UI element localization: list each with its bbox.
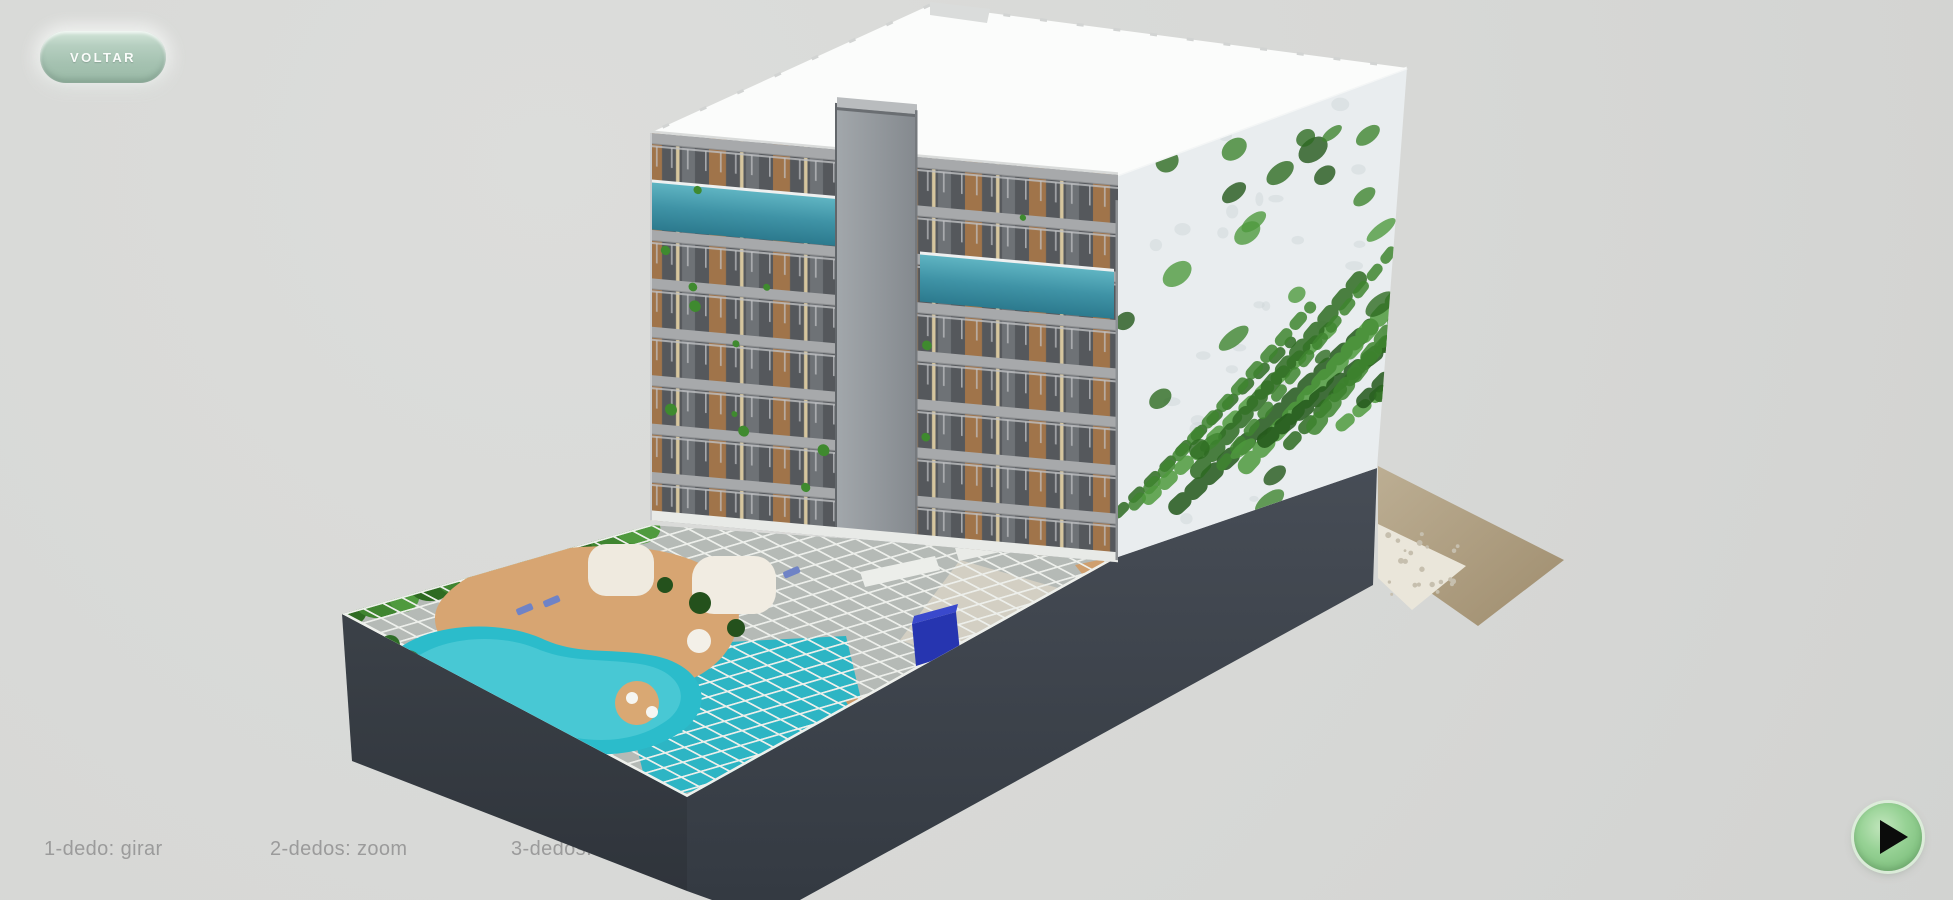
back-button[interactable]: VOLTAR — [40, 31, 166, 83]
viewer-stage: 1-dedo: girar 2-dedos: zoom 3-dedos: mov… — [0, 0, 1953, 900]
pool-island — [615, 681, 659, 725]
parasol — [687, 629, 711, 653]
terrain-ground — [1378, 466, 1564, 626]
model-viewport[interactable] — [0, 0, 1953, 900]
elevator-core — [837, 103, 917, 544]
play-button[interactable] — [1854, 803, 1922, 871]
play-icon — [1880, 820, 1908, 854]
cabana — [588, 544, 654, 596]
